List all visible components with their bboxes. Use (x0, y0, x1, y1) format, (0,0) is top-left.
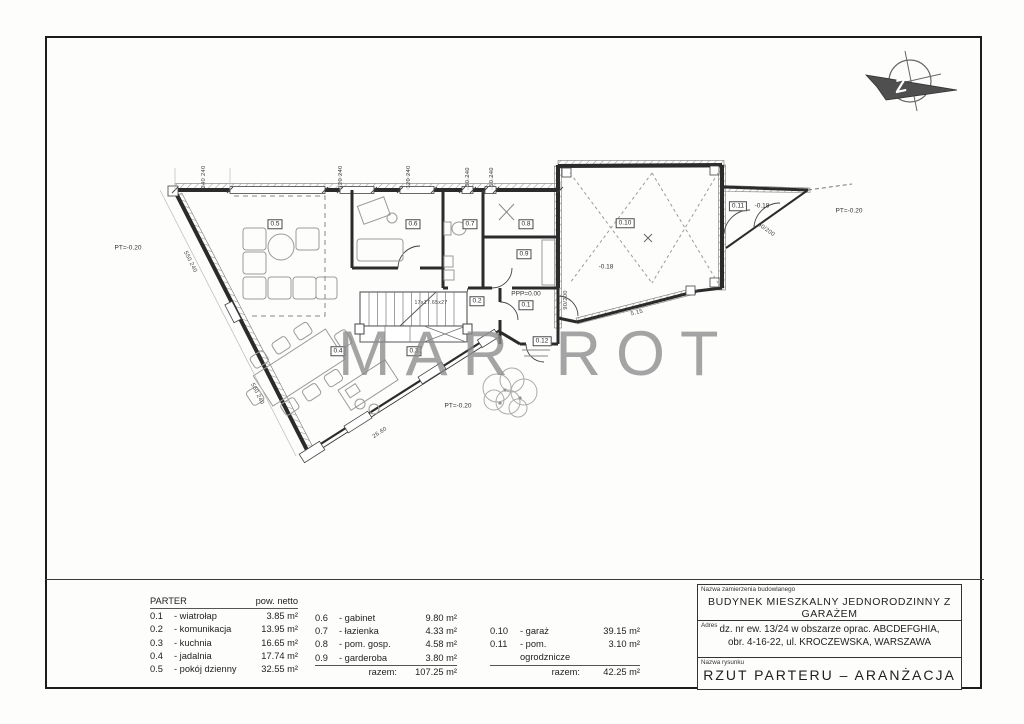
legend-total-row: razem:42.25 m² (490, 665, 640, 679)
project-label: Nazwa zamierzenia budowlanego (698, 585, 961, 593)
legend-row: 0.4- jadalnia17.74 m² (150, 650, 298, 663)
room-name: - garaż (520, 625, 586, 638)
living-room-dashed-zone (234, 196, 325, 316)
legend-total-row: razem:107.25 m² (315, 665, 457, 679)
room-area: 3.80 m² (403, 652, 457, 665)
legend-title: PARTER (150, 595, 236, 608)
legend-row: 0.5- pokój dzienny32.55 m² (150, 663, 298, 676)
level-garage: -0.18 (599, 264, 614, 271)
room-name: - wiatrołap (174, 610, 244, 623)
room-area: 39.15 m² (586, 625, 640, 638)
page: 0.1 0.2 0.3 0.4 0.5 0.6 0.7 0.8 0.9 0.10… (0, 0, 1024, 724)
legend-column-1: PARTER pow. netto 0.1- wiatrołap3.85 m² … (150, 595, 298, 676)
legend-header: PARTER pow. netto (150, 595, 298, 609)
room-name: - pokój dzienny (174, 663, 244, 676)
room-label-0-8: 0.8 (518, 219, 533, 229)
dim-stairs: 17x17.65x27 (414, 300, 447, 306)
dim-top-2: 120 240 (338, 165, 344, 188)
total-label: razem: (315, 666, 403, 679)
room-label-0-9: 0.9 (516, 249, 531, 259)
title-block-address-section: Adres dz. nr ew. 13/24 w obszarze oprac.… (698, 621, 961, 658)
legend-column-2: 0.6- gabinet9.80 m² 0.7- łazienka4.33 m²… (315, 612, 457, 679)
north-arrow-icon (866, 51, 957, 111)
room-area: 13.95 m² (244, 623, 298, 636)
room-no: 0.11 (490, 638, 520, 664)
dim-top-5: 50 240 (489, 167, 495, 187)
room-name: - jadalnia (174, 650, 244, 663)
room-label-0-5: 0.5 (267, 219, 282, 229)
dim-top-3: 120 240 (406, 165, 412, 188)
room-area: 3.85 m² (244, 610, 298, 623)
wardrobe (542, 240, 555, 285)
room-label-0-7: 0.7 (462, 219, 477, 229)
room-no: 0.4 (150, 650, 174, 663)
address-line-2: obr. 4-16-22, ul. KROCZEWSKA, WARSZAWA (698, 637, 961, 648)
legend-row: 0.8- pom. gosp.4.58 m² (315, 638, 457, 651)
level-ppp: PPP=0.00 (511, 291, 540, 298)
legend-area-header: pow. netto (236, 595, 298, 608)
room-label-0-11: 0.11 (729, 201, 747, 211)
level-pt-terrace: PT=-0.20 (445, 403, 472, 410)
dim-door-garage: 90/200 (563, 290, 569, 310)
room-area: 16.65 m² (244, 637, 298, 650)
room-no: 0.8 (315, 638, 339, 651)
room-label-0-1: 0.1 (518, 300, 533, 310)
room-label-0-2: 0.2 (469, 296, 484, 306)
room-name: - kuchnia (174, 637, 244, 650)
address-label: Adres (698, 621, 717, 629)
utility-appliance-mark (499, 204, 514, 220)
room-name: - garderoba (339, 652, 403, 665)
room-no: 0.2 (150, 623, 174, 636)
drawing-label: Nazwa rysunku (698, 658, 961, 666)
level-pt-right: PT=-0.20 (836, 208, 863, 215)
room-no: 0.5 (150, 663, 174, 676)
room-area: 3.10 m² (586, 638, 640, 664)
room-label-0-10: 0.10 (616, 218, 635, 228)
legend-row: 0.9- garderoba3.80 m² (315, 652, 457, 665)
address-line-1: dz. nr ew. 13/24 w obszarze oprac. ABCDE… (698, 624, 961, 635)
legend-row: 0.2- komunikacja13.95 m² (150, 623, 298, 636)
level-pt-left: PT=-0.20 (115, 245, 142, 252)
watermark: MAR ROT (338, 324, 733, 384)
title-block-project-section: Nazwa zamierzenia budowlanego BUDYNEK MI… (698, 585, 961, 621)
legend-row: 0.6- gabinet9.80 m² (315, 612, 457, 625)
dim-top-4: 50 240 (465, 167, 471, 187)
room-no: 0.7 (315, 625, 339, 638)
legend-row: 0.11- pom. ogrodznicze3.10 m² (490, 638, 640, 664)
total-area: 42.25 m² (586, 666, 640, 679)
room-label-0-6: 0.6 (405, 219, 420, 229)
total-label: razem: (490, 666, 586, 679)
room-area: 4.33 m² (403, 625, 457, 638)
room-name: - komunikacja (174, 623, 244, 636)
legend-row: 0.10- garaż39.15 m² (490, 625, 640, 638)
wall-hatching (175, 161, 810, 454)
room-area: 9.80 m² (403, 612, 457, 625)
room-area: 17.74 m² (244, 650, 298, 663)
room-area: 32.55 m² (244, 663, 298, 676)
project-name: BUDYNEK MIESZKALNY JEDNORODZINNY Z GARAŻ… (698, 596, 961, 620)
room-no: 0.9 (315, 652, 339, 665)
title-block: Nazwa zamierzenia budowlanego BUDYNEK MI… (697, 584, 962, 690)
room-name: - pom. ogrodznicze (520, 638, 586, 664)
garage-center-mark (644, 234, 652, 242)
legend-row: 0.3- kuchnia16.65 m² (150, 637, 298, 650)
living-room-sofa (243, 228, 337, 299)
garage-parking-marks (570, 173, 718, 283)
total-area: 107.25 m² (403, 666, 457, 679)
room-name: - pom. gosp. (339, 638, 403, 651)
room-no: 0.10 (490, 625, 520, 638)
room-no: 0.1 (150, 610, 174, 623)
room-name: - gabinet (339, 612, 403, 625)
room-area: 4.58 m² (403, 638, 457, 651)
room-name: - łazienka (339, 625, 403, 638)
legend-row: 0.1- wiatrołap3.85 m² (150, 610, 298, 623)
level-garden-room: -0.18 (755, 203, 770, 210)
legend-row: 0.7- łazienka4.33 m² (315, 625, 457, 638)
bathroom-fixtures (444, 222, 466, 280)
drawing-name: RZUT PARTERU – ARANŻACJA (698, 667, 961, 683)
dim-top-1: 240 240 (201, 165, 207, 188)
room-no: 0.3 (150, 637, 174, 650)
room-no: 0.6 (315, 612, 339, 625)
office-furniture (357, 197, 403, 261)
legend-column-3: 0.10- garaż39.15 m² 0.11- pom. ogrodznic… (490, 625, 640, 679)
title-block-drawing-section: Nazwa rysunku RZUT PARTERU – ARANŻACJA (698, 658, 961, 689)
